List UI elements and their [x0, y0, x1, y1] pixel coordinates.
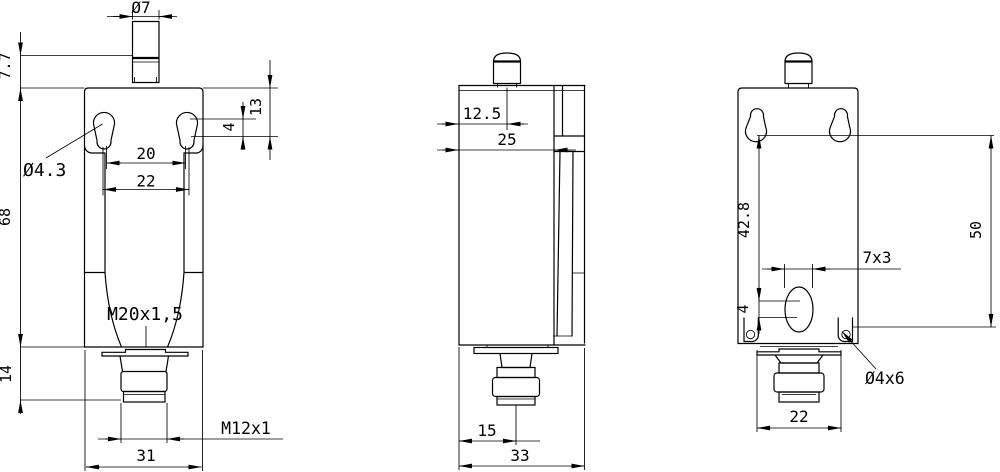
rear-keyhole-slot-left	[746, 109, 767, 142]
rear-keyhole-slot-right	[830, 109, 851, 142]
side-dimension-labels: 12.5 25 15 33	[463, 104, 530, 465]
side-mounting-bracket	[553, 86, 585, 344]
label-corner-hole: Ø4x6	[865, 369, 905, 388]
side-view: 12.5 25 15 33	[437, 53, 585, 470]
dim-connector-flange-width: 22	[789, 407, 808, 426]
dim-hole-span: 22	[136, 172, 155, 191]
rear-body-outline	[738, 88, 858, 347]
dim-body-depth: 25	[497, 130, 516, 149]
rear-plunger	[785, 53, 812, 88]
rear-corner-clip-right	[838, 318, 852, 342]
dim-hole-offset: 4	[734, 304, 752, 313]
dim-connector-height: 14	[0, 365, 15, 383]
dim-slot-height: 13	[247, 98, 265, 116]
front-connector	[102, 350, 188, 403]
rear-dimension-labels: 42.8 50 7x3 4 Ø4x6 22	[734, 202, 985, 426]
side-connector	[474, 345, 558, 405]
dim-plunger-center: 12.5	[463, 104, 502, 123]
rear-view: 42.8 50 7x3 4 Ø4x6 22	[734, 53, 996, 432]
label-mount-hole-diameter: Ø4.3	[23, 160, 66, 181]
dim-body-width: 31	[136, 446, 155, 465]
dim-slot-size: 7x3	[863, 248, 892, 267]
dim-plunger-diameter: Ø7	[131, 0, 150, 17]
rear-oval-slot	[785, 287, 813, 332]
label-connector-thread: M12x1	[221, 419, 271, 438]
front-keyhole-slot-right	[177, 112, 198, 149]
front-view: Ø7 7.7 13 4 20 22 Ø4.3 68 M20x1,5 14 M12…	[0, 0, 283, 471]
drawing-canvas: Ø7 7.7 13 4 20 22 Ø4.3 68 M20x1,5 14 M12…	[0, 0, 1000, 472]
front-dimension-labels: Ø7 7.7 13 4 20 22 Ø4.3 68 M20x1,5 14 M12…	[0, 0, 271, 465]
label-head-thread: M20x1,5	[107, 304, 183, 325]
front-keyhole-slot-left	[94, 112, 115, 149]
dim-slot-center-offset: 4	[220, 122, 238, 131]
dim-connector-center: 15	[477, 421, 496, 440]
dim-pretravel: 7.7	[0, 52, 14, 79]
side-plunger	[494, 53, 521, 88]
technical-drawing: Ø7 7.7 13 4 20 22 Ø4.3 68 M20x1,5 14 M12…	[0, 0, 1000, 472]
rear-connector	[757, 349, 841, 402]
front-plunger	[133, 22, 160, 83]
dim-slot-center-drop: 42.8	[735, 202, 753, 238]
dim-hole-span-inner: 20	[136, 144, 155, 163]
dim-overall-depth: 33	[510, 446, 529, 465]
dim-mount-span: 50	[967, 221, 985, 239]
dim-body-height: 68	[0, 208, 14, 226]
rear-corner-clip-left	[744, 318, 758, 342]
